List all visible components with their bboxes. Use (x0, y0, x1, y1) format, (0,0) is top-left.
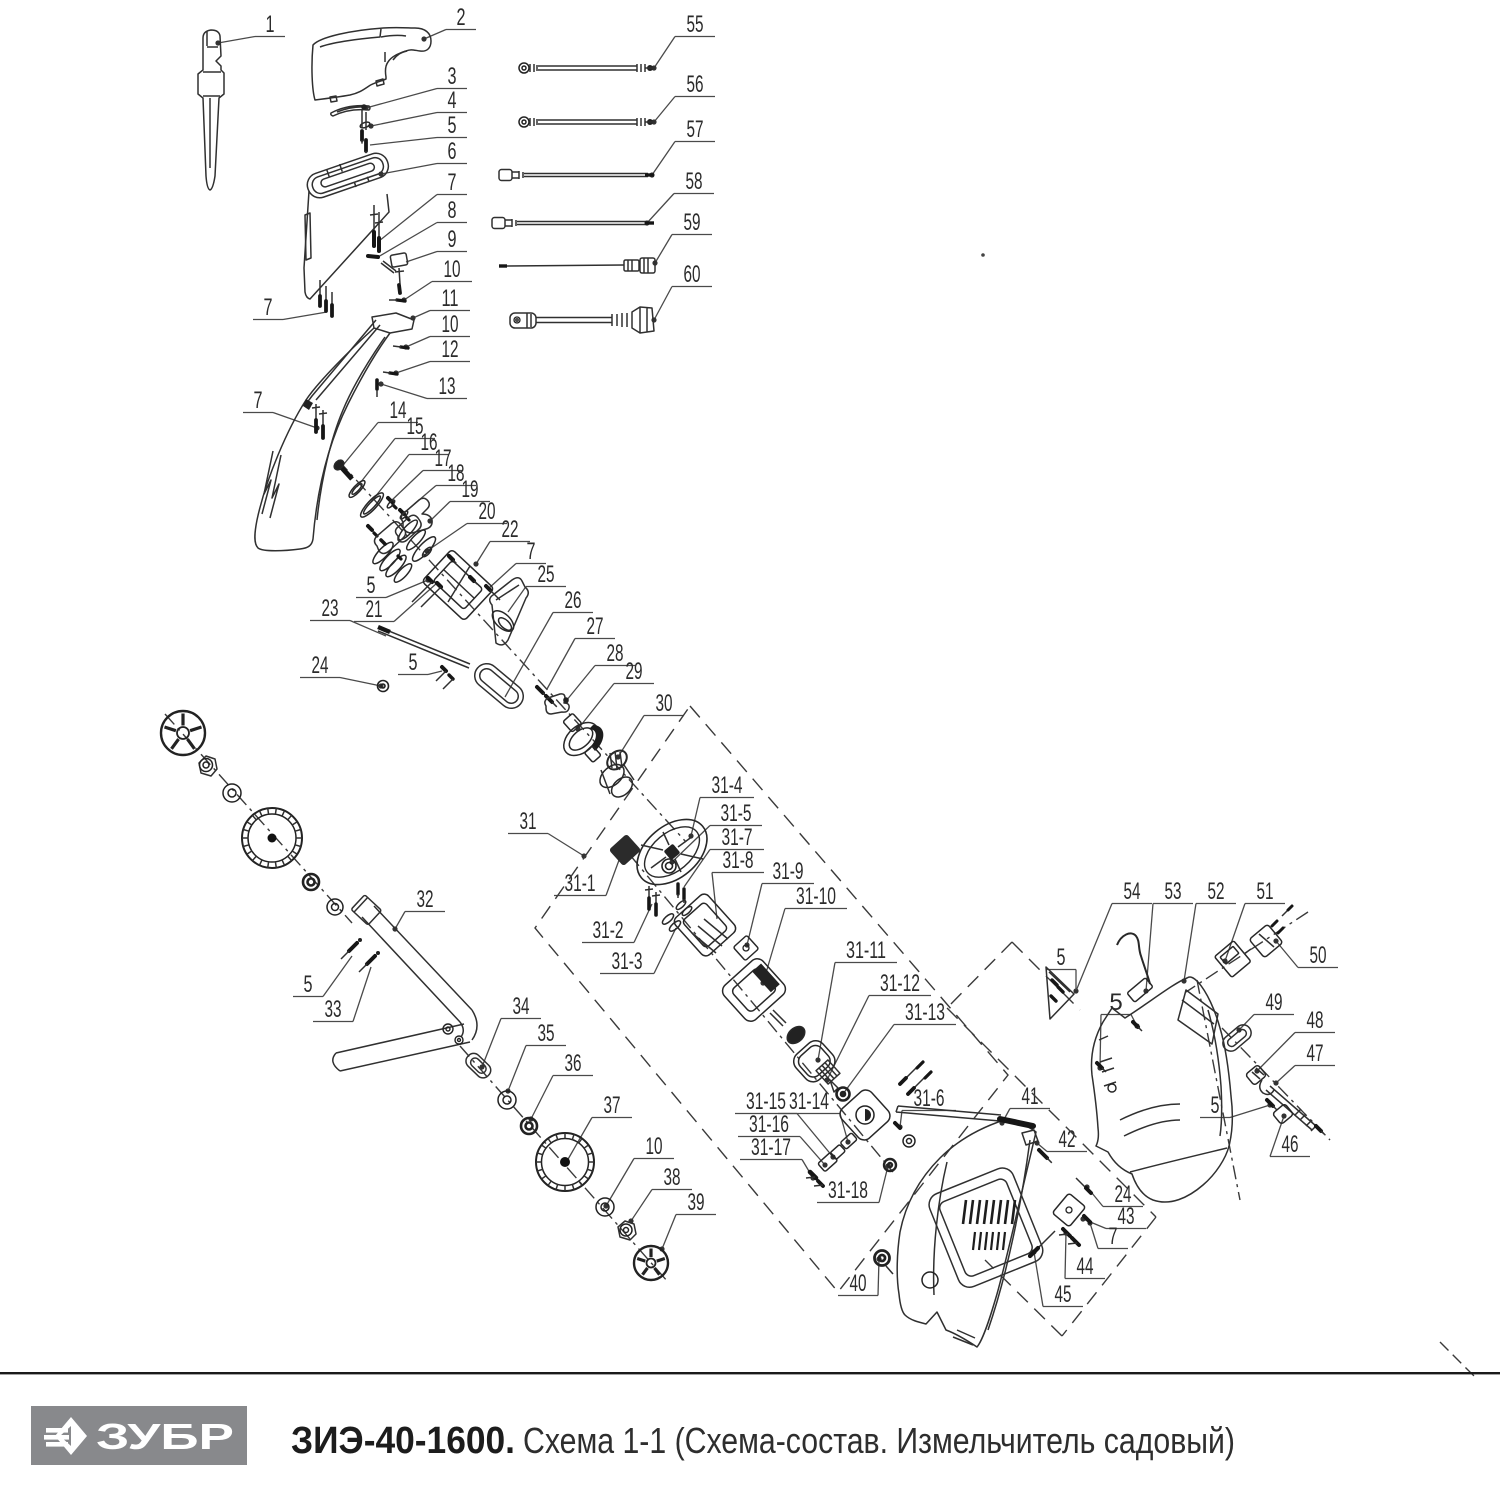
svg-text:31-13: 31-13 (905, 999, 945, 1026)
svg-text:31-1: 31-1 (565, 870, 596, 897)
svg-text:5: 5 (409, 649, 418, 676)
svg-text:31-3: 31-3 (612, 948, 643, 975)
svg-text:11: 11 (442, 285, 459, 312)
svg-text:31-11: 31-11 (846, 937, 886, 964)
svg-text:5: 5 (304, 971, 313, 998)
svg-text:31-10: 31-10 (796, 883, 836, 910)
svg-text:31-4: 31-4 (712, 772, 743, 799)
svg-text:60: 60 (684, 261, 701, 288)
svg-text:7: 7 (264, 294, 273, 321)
svg-text:38: 38 (664, 1164, 681, 1191)
svg-text:29: 29 (626, 658, 643, 685)
svg-text:56: 56 (687, 71, 704, 98)
svg-text:49: 49 (1266, 989, 1283, 1016)
svg-text:31-9: 31-9 (773, 858, 804, 885)
svg-text:39: 39 (688, 1189, 705, 1216)
svg-text:24: 24 (312, 652, 329, 679)
svg-text:53: 53 (1165, 878, 1182, 905)
svg-text:50: 50 (1310, 942, 1327, 969)
svg-text:7: 7 (1109, 1223, 1118, 1250)
svg-text:30: 30 (656, 690, 673, 717)
svg-text:37: 37 (604, 1092, 621, 1119)
svg-text:32: 32 (417, 886, 434, 913)
svg-text:31-5: 31-5 (721, 800, 752, 827)
svg-text:21: 21 (366, 596, 383, 623)
svg-text:13: 13 (439, 373, 456, 400)
svg-text:5: 5 (448, 112, 457, 139)
svg-text:10: 10 (646, 1133, 663, 1160)
svg-text:31-18: 31-18 (828, 1177, 868, 1204)
svg-text:ЗУБР: ЗУБР (96, 1416, 234, 1457)
svg-text:3: 3 (448, 63, 457, 90)
svg-text:Схема 1-1 (Схема-состав. Измел: Схема 1-1 (Схема-состав. Измельчитель са… (523, 1420, 1235, 1461)
svg-text:1: 1 (266, 11, 275, 38)
svg-text:19: 19 (462, 476, 479, 503)
svg-text:48: 48 (1307, 1007, 1324, 1034)
svg-text:4: 4 (448, 87, 457, 114)
svg-text:31: 31 (520, 808, 537, 835)
svg-text:51: 51 (1257, 878, 1274, 905)
svg-text:31-14: 31-14 (789, 1088, 829, 1115)
svg-text:28: 28 (607, 640, 624, 667)
svg-text:20: 20 (479, 498, 496, 525)
svg-text:5: 5 (1211, 1092, 1220, 1119)
svg-text:45: 45 (1055, 1281, 1072, 1308)
svg-text:27: 27 (587, 613, 604, 640)
svg-text:14: 14 (390, 397, 407, 424)
svg-text:36: 36 (565, 1050, 582, 1077)
svg-text:43: 43 (1118, 1203, 1135, 1230)
svg-text:57: 57 (687, 116, 704, 143)
svg-text:7: 7 (527, 538, 536, 565)
svg-text:8: 8 (448, 197, 457, 224)
svg-text:52: 52 (1208, 878, 1225, 905)
svg-text:2: 2 (457, 4, 466, 31)
svg-text:47: 47 (1307, 1040, 1324, 1067)
svg-text:22: 22 (502, 516, 519, 543)
svg-text:31-2: 31-2 (593, 917, 624, 944)
svg-text:35: 35 (538, 1020, 555, 1047)
svg-text:10: 10 (442, 311, 459, 338)
svg-text:ЗИЭ-40-1600.: ЗИЭ-40-1600. (291, 1420, 515, 1462)
svg-text:5: 5 (1057, 944, 1066, 971)
svg-text:7: 7 (448, 169, 457, 196)
svg-text:33: 33 (325, 996, 342, 1023)
svg-text:25: 25 (538, 561, 555, 588)
svg-text:44: 44 (1077, 1253, 1094, 1280)
svg-text:55: 55 (687, 11, 704, 38)
svg-text:46: 46 (1282, 1131, 1299, 1158)
svg-text:5: 5 (367, 572, 376, 599)
svg-text:31-12: 31-12 (880, 970, 920, 997)
svg-text:23: 23 (322, 595, 339, 622)
svg-text:26: 26 (565, 587, 582, 614)
svg-text:9: 9 (448, 226, 457, 253)
svg-text:6: 6 (448, 138, 457, 165)
svg-text:42: 42 (1059, 1126, 1076, 1153)
svg-text:12: 12 (442, 336, 459, 363)
svg-text:40: 40 (850, 1270, 867, 1297)
svg-text:31-8: 31-8 (723, 847, 754, 874)
svg-text:34: 34 (513, 993, 530, 1020)
svg-text:58: 58 (686, 168, 703, 195)
svg-text:59: 59 (684, 209, 701, 236)
svg-text:31-17: 31-17 (751, 1134, 791, 1161)
svg-text:54: 54 (1124, 878, 1141, 905)
svg-text:7: 7 (254, 387, 263, 414)
svg-text:10: 10 (444, 256, 461, 283)
